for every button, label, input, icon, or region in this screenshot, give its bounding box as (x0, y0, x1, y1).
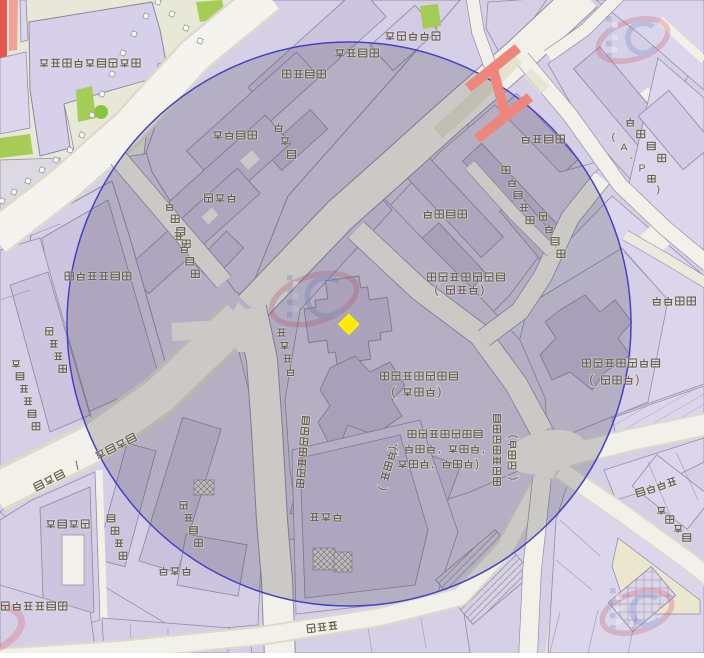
svg-text:): ) (635, 373, 639, 387)
svg-text:,: , (482, 443, 485, 456)
svg-text:A: A (621, 141, 628, 153)
svg-text:): ) (437, 385, 441, 399)
svg-text:,: , (431, 458, 434, 471)
svg-text:(: ( (506, 476, 518, 480)
svg-text:-: - (630, 152, 634, 164)
svg-text:): ) (475, 458, 479, 471)
svg-text:,: , (438, 443, 441, 456)
svg-text:P: P (639, 162, 646, 174)
svg-text:): ) (506, 435, 518, 439)
svg-text:): ) (480, 283, 484, 297)
svg-text:(: ( (612, 131, 616, 143)
svg-text:): ) (657, 183, 661, 195)
svg-text:(: ( (391, 385, 395, 399)
svg-text:(: ( (434, 283, 438, 297)
svg-text:(: ( (589, 373, 593, 387)
